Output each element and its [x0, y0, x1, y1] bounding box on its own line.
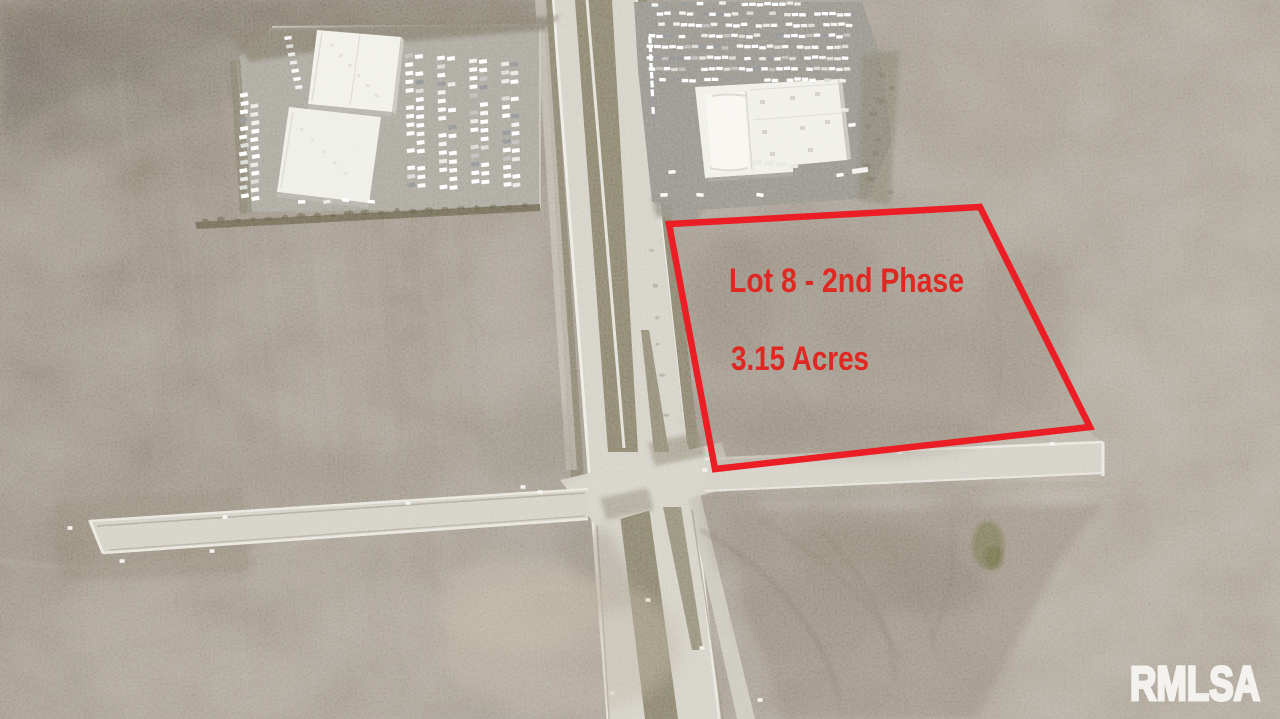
svg-text:RMLSA: RMLSA [1130, 658, 1260, 711]
svg-text:3.15 Acres: 3.15 Acres [731, 340, 869, 378]
svg-text:Lot 8 - 2nd Phase: Lot 8 - 2nd Phase [729, 262, 964, 300]
